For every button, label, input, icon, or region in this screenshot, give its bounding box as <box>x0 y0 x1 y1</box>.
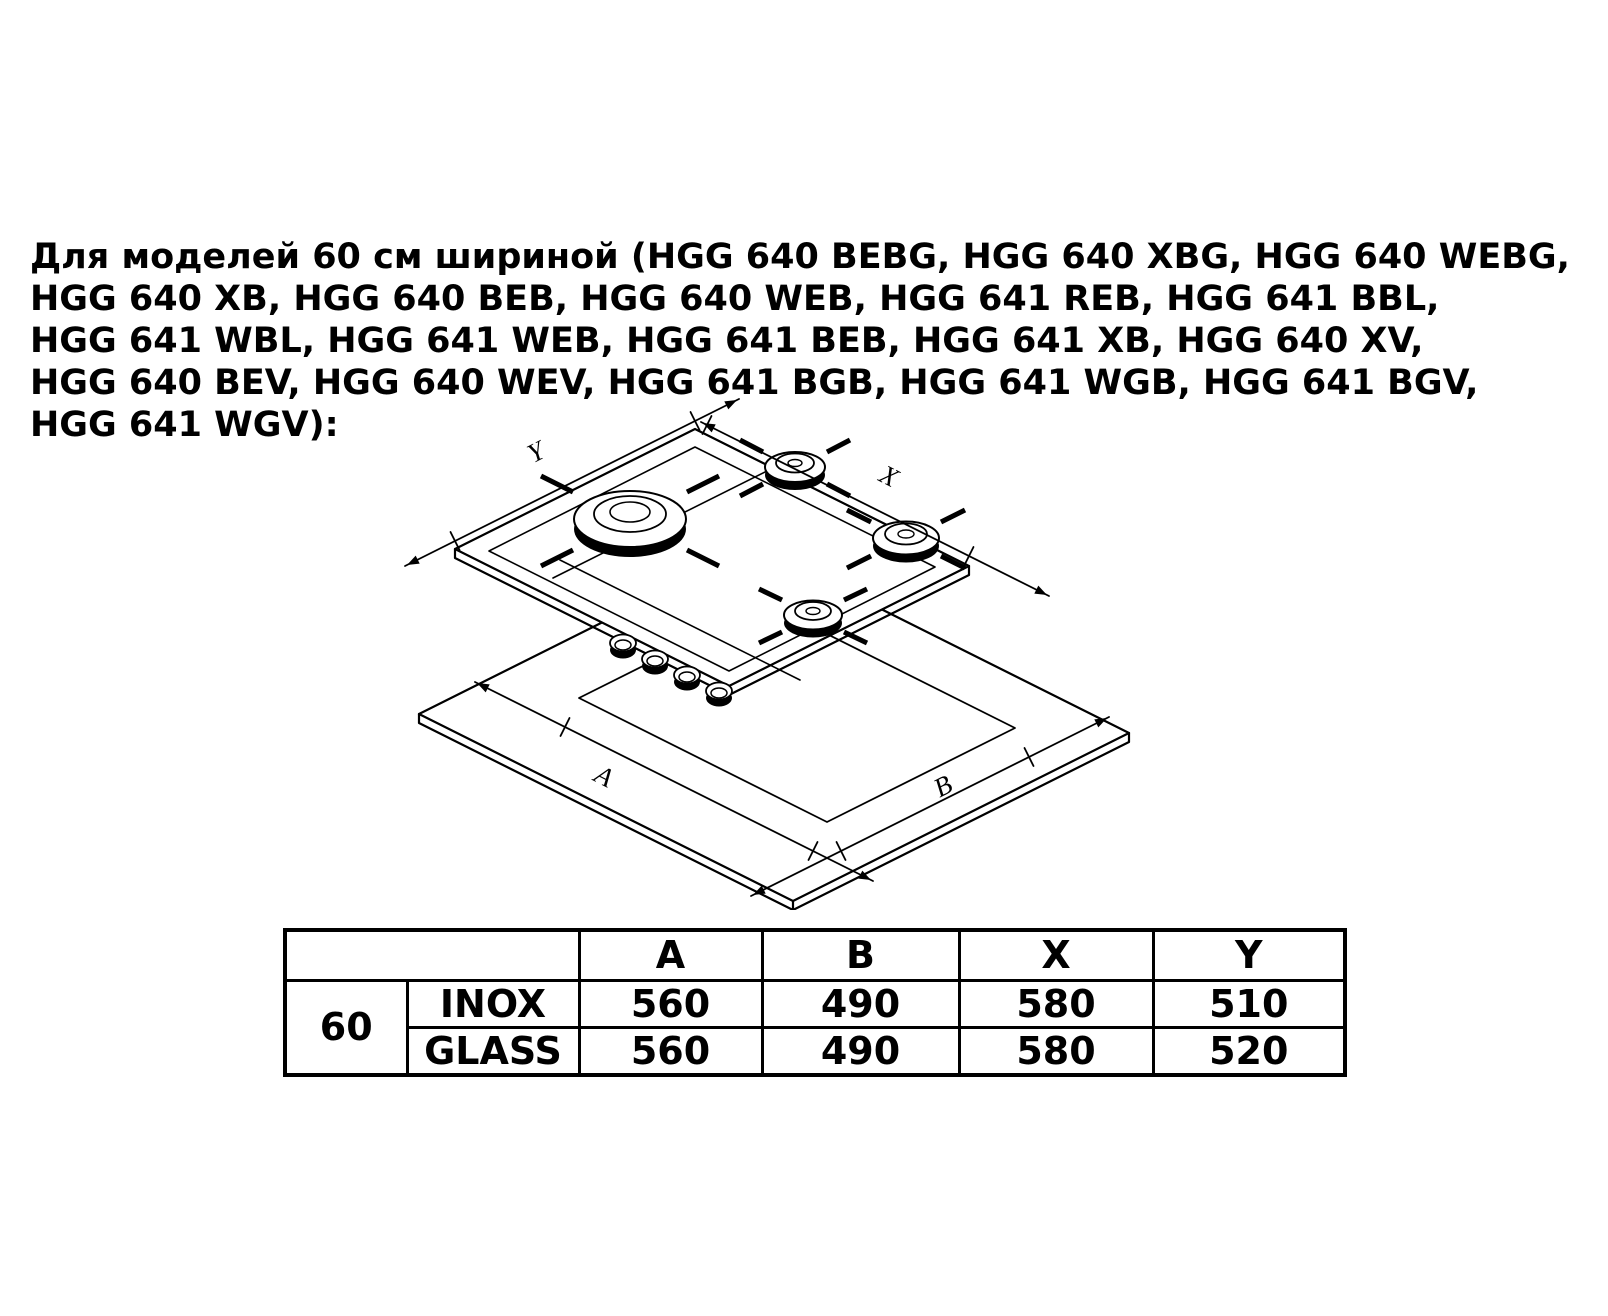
intro-line-1: Для моделей 60 см шириной (HGG 640 BEBG,… <box>30 236 1590 278</box>
table-row-inox: 60 INOX 560 490 580 510 <box>285 980 1345 1027</box>
value-inox-a: 560 <box>579 980 762 1027</box>
intro-line-3: HGG 641 WBL, HGG 641 WEB, HGG 641 BEB, H… <box>30 320 1590 362</box>
finish-cell-glass: GLASS <box>407 1027 579 1075</box>
value-inox-b: 490 <box>762 980 959 1027</box>
knob-4 <box>706 683 732 707</box>
col-header-y: Y <box>1153 930 1345 980</box>
value-inox-x: 580 <box>959 980 1153 1027</box>
hob-installation-diagram: A B <box>385 398 1155 910</box>
knob-2 <box>642 651 668 675</box>
dimensions-table: A B X Y 60 INOX 560 490 580 510 GLASS 56… <box>283 928 1347 1077</box>
value-glass-y: 520 <box>1153 1027 1345 1075</box>
table-corner-cell <box>285 930 579 980</box>
knob-3 <box>674 667 700 691</box>
burner-front <box>784 601 842 638</box>
col-header-a: A <box>579 930 762 980</box>
value-glass-b: 490 <box>762 1027 959 1075</box>
manual-page: Для моделей 60 см шириной (HGG 640 BEBG,… <box>0 0 1608 1316</box>
knob-1 <box>610 635 636 659</box>
col-header-b: B <box>762 930 959 980</box>
burner-large-left <box>574 491 686 557</box>
value-glass-x: 580 <box>959 1027 1153 1075</box>
burner-right <box>873 522 939 563</box>
value-inox-y: 510 <box>1153 980 1345 1027</box>
table-row-glass: GLASS 560 490 580 520 <box>285 1027 1345 1075</box>
finish-cell-inox: INOX <box>407 980 579 1027</box>
col-header-x: X <box>959 930 1153 980</box>
width-60-cell: 60 <box>285 980 407 1075</box>
intro-line-2: HGG 640 XB, HGG 640 BEB, HGG 640 WEB, HG… <box>30 278 1590 320</box>
dimension-label-x: X <box>874 458 905 493</box>
dimension-label-y: Y <box>522 434 552 469</box>
value-glass-a: 560 <box>579 1027 762 1075</box>
